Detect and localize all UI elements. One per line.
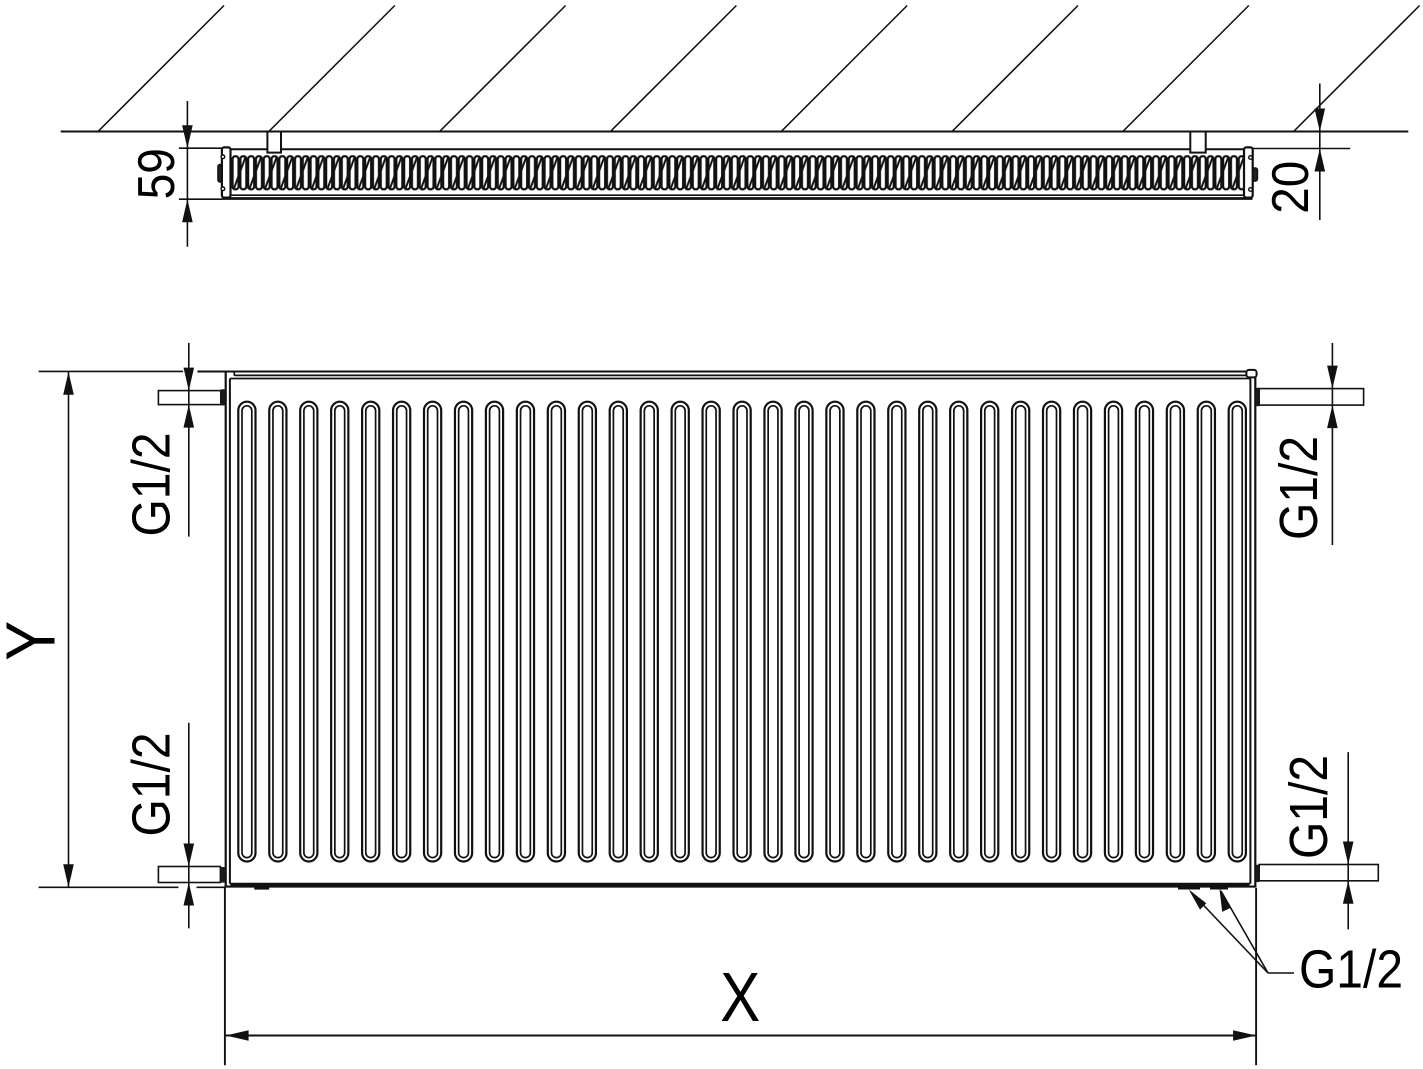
svg-text:G1/2: G1/2 [1299,940,1403,1000]
svg-text:20: 20 [1262,161,1320,214]
svg-text:Y: Y [0,621,70,661]
svg-text:59: 59 [128,148,186,199]
svg-text:G1/2: G1/2 [122,733,182,837]
svg-text:X: X [720,958,760,1036]
svg-text:G1/2: G1/2 [1279,755,1339,859]
svg-text:G1/2: G1/2 [122,433,182,537]
svg-text:G1/2: G1/2 [1269,436,1329,540]
